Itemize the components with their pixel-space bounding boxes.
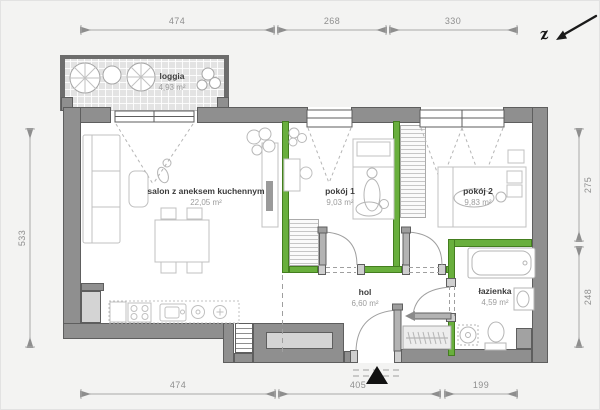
dim-top-1: 474 (169, 16, 185, 26)
entrance-arrow (366, 366, 388, 384)
north-arrow-icon (556, 16, 596, 40)
washing-machine (458, 325, 478, 345)
window-pokoj2 (420, 110, 504, 127)
kitchen-counter (109, 301, 239, 323)
dim-bottom-2: 405 (350, 380, 366, 390)
room-label-pokoj1: pokój 1 9,03 m² (325, 186, 355, 208)
wardrobe-hol (403, 326, 451, 349)
dim-bottom-3: 199 (473, 380, 489, 390)
plan-linework (1, 1, 600, 410)
balcony-door (115, 111, 194, 122)
dim-bottom-1: 474 (170, 380, 186, 390)
floor-plan: z loggia 4,93 m² salon z aneksem kuchenn… (0, 0, 600, 410)
room-label-lazienka: łazienka 4,59 m² (478, 286, 511, 308)
plant-pokoj1 (289, 128, 307, 146)
dim-top-3: 330 (445, 16, 461, 26)
sofa (83, 135, 120, 243)
dim-right-2: 248 (583, 289, 593, 305)
desk-pokoj1 (284, 159, 312, 191)
door-entrance (356, 304, 403, 351)
door-pokoj1 (318, 227, 357, 265)
window-pokoj1 (307, 110, 352, 127)
tv-unit (262, 143, 278, 227)
toilet (485, 322, 506, 350)
dashed-openings (283, 268, 455, 377)
bathtub (468, 248, 535, 278)
dining-table (155, 208, 209, 273)
dim-right-1: 275 (583, 177, 593, 193)
loggia-plants (70, 63, 221, 93)
door-bathroom (405, 287, 451, 321)
room-label-salon: salon z aneksem kuchennym 22,05 m² (147, 186, 264, 208)
room-label-hol: hol 6,60 m² (351, 287, 378, 309)
dim-top-2: 268 (324, 16, 340, 26)
person-salon (156, 159, 171, 184)
room-label-loggia: loggia 4,93 m² (158, 71, 185, 93)
dim-left-1: 533 (17, 230, 27, 246)
nightstand-pokoj2 (508, 150, 524, 163)
coffee-table (129, 171, 148, 207)
plant-salon (247, 128, 275, 155)
washbasin (514, 288, 534, 310)
door-pokoj2 (402, 227, 443, 265)
room-label-pokoj2: pokój 2 9,83 m² (463, 186, 493, 208)
